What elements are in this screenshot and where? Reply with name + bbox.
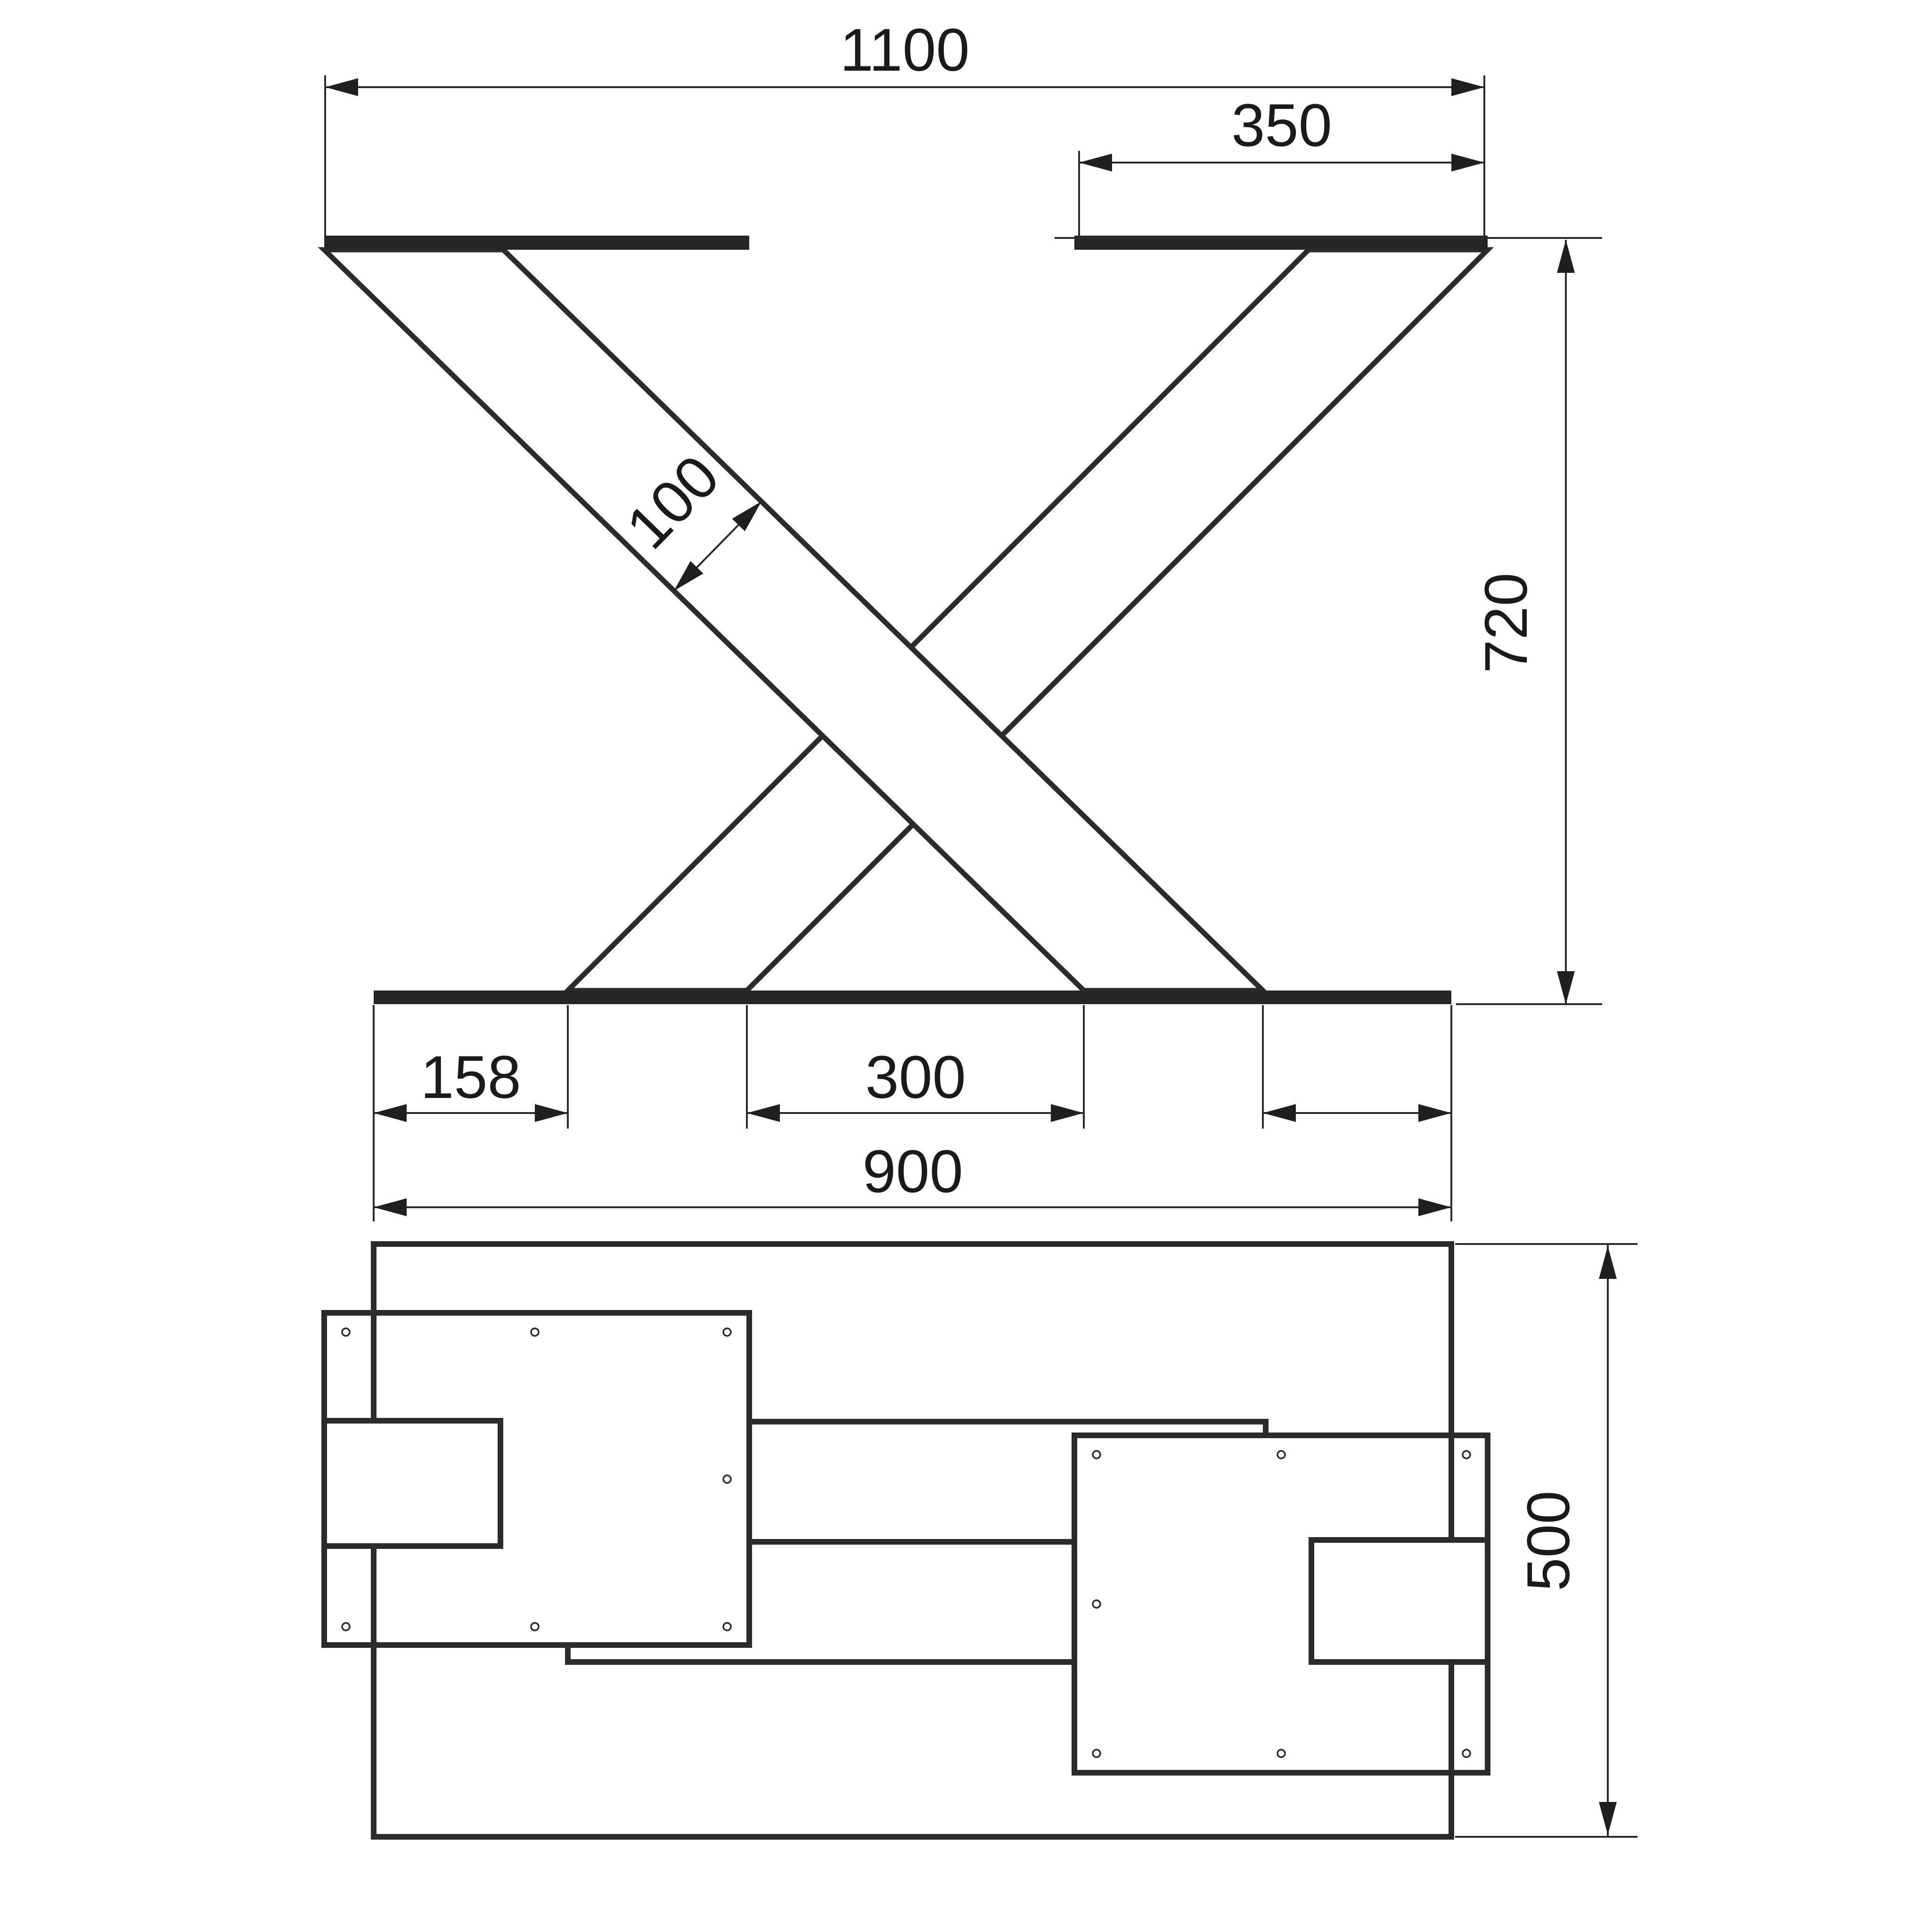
front-view: 1100 350 100 720: [324, 16, 1602, 1221]
drawing-sheet: 1100 350 100 720: [0, 0, 1932, 1932]
dimension-top-plate: 350: [1079, 92, 1484, 236]
dim-label-350: 350: [1231, 92, 1332, 159]
top-plate-left: [324, 236, 749, 250]
plan-end-tab-left: [324, 1421, 500, 1546]
dim-label-500: 500: [1515, 1490, 1582, 1591]
foot-bar: [374, 991, 1451, 1004]
plan-view: 500: [324, 1244, 1637, 1837]
dim-label-158: 158: [420, 1044, 521, 1111]
technical-drawing: 1100 350 100 720: [0, 0, 1932, 1932]
dim-label-300: 300: [865, 1044, 966, 1111]
plan-end-tab-right: [1311, 1540, 1488, 1662]
dim-label-900: 900: [862, 1138, 963, 1205]
dim-label-720: 720: [1473, 573, 1540, 673]
x-legs: [324, 250, 1488, 991]
dimension-foot: 158 300 900: [374, 1005, 1451, 1221]
dim-label-1100: 1100: [840, 16, 969, 84]
